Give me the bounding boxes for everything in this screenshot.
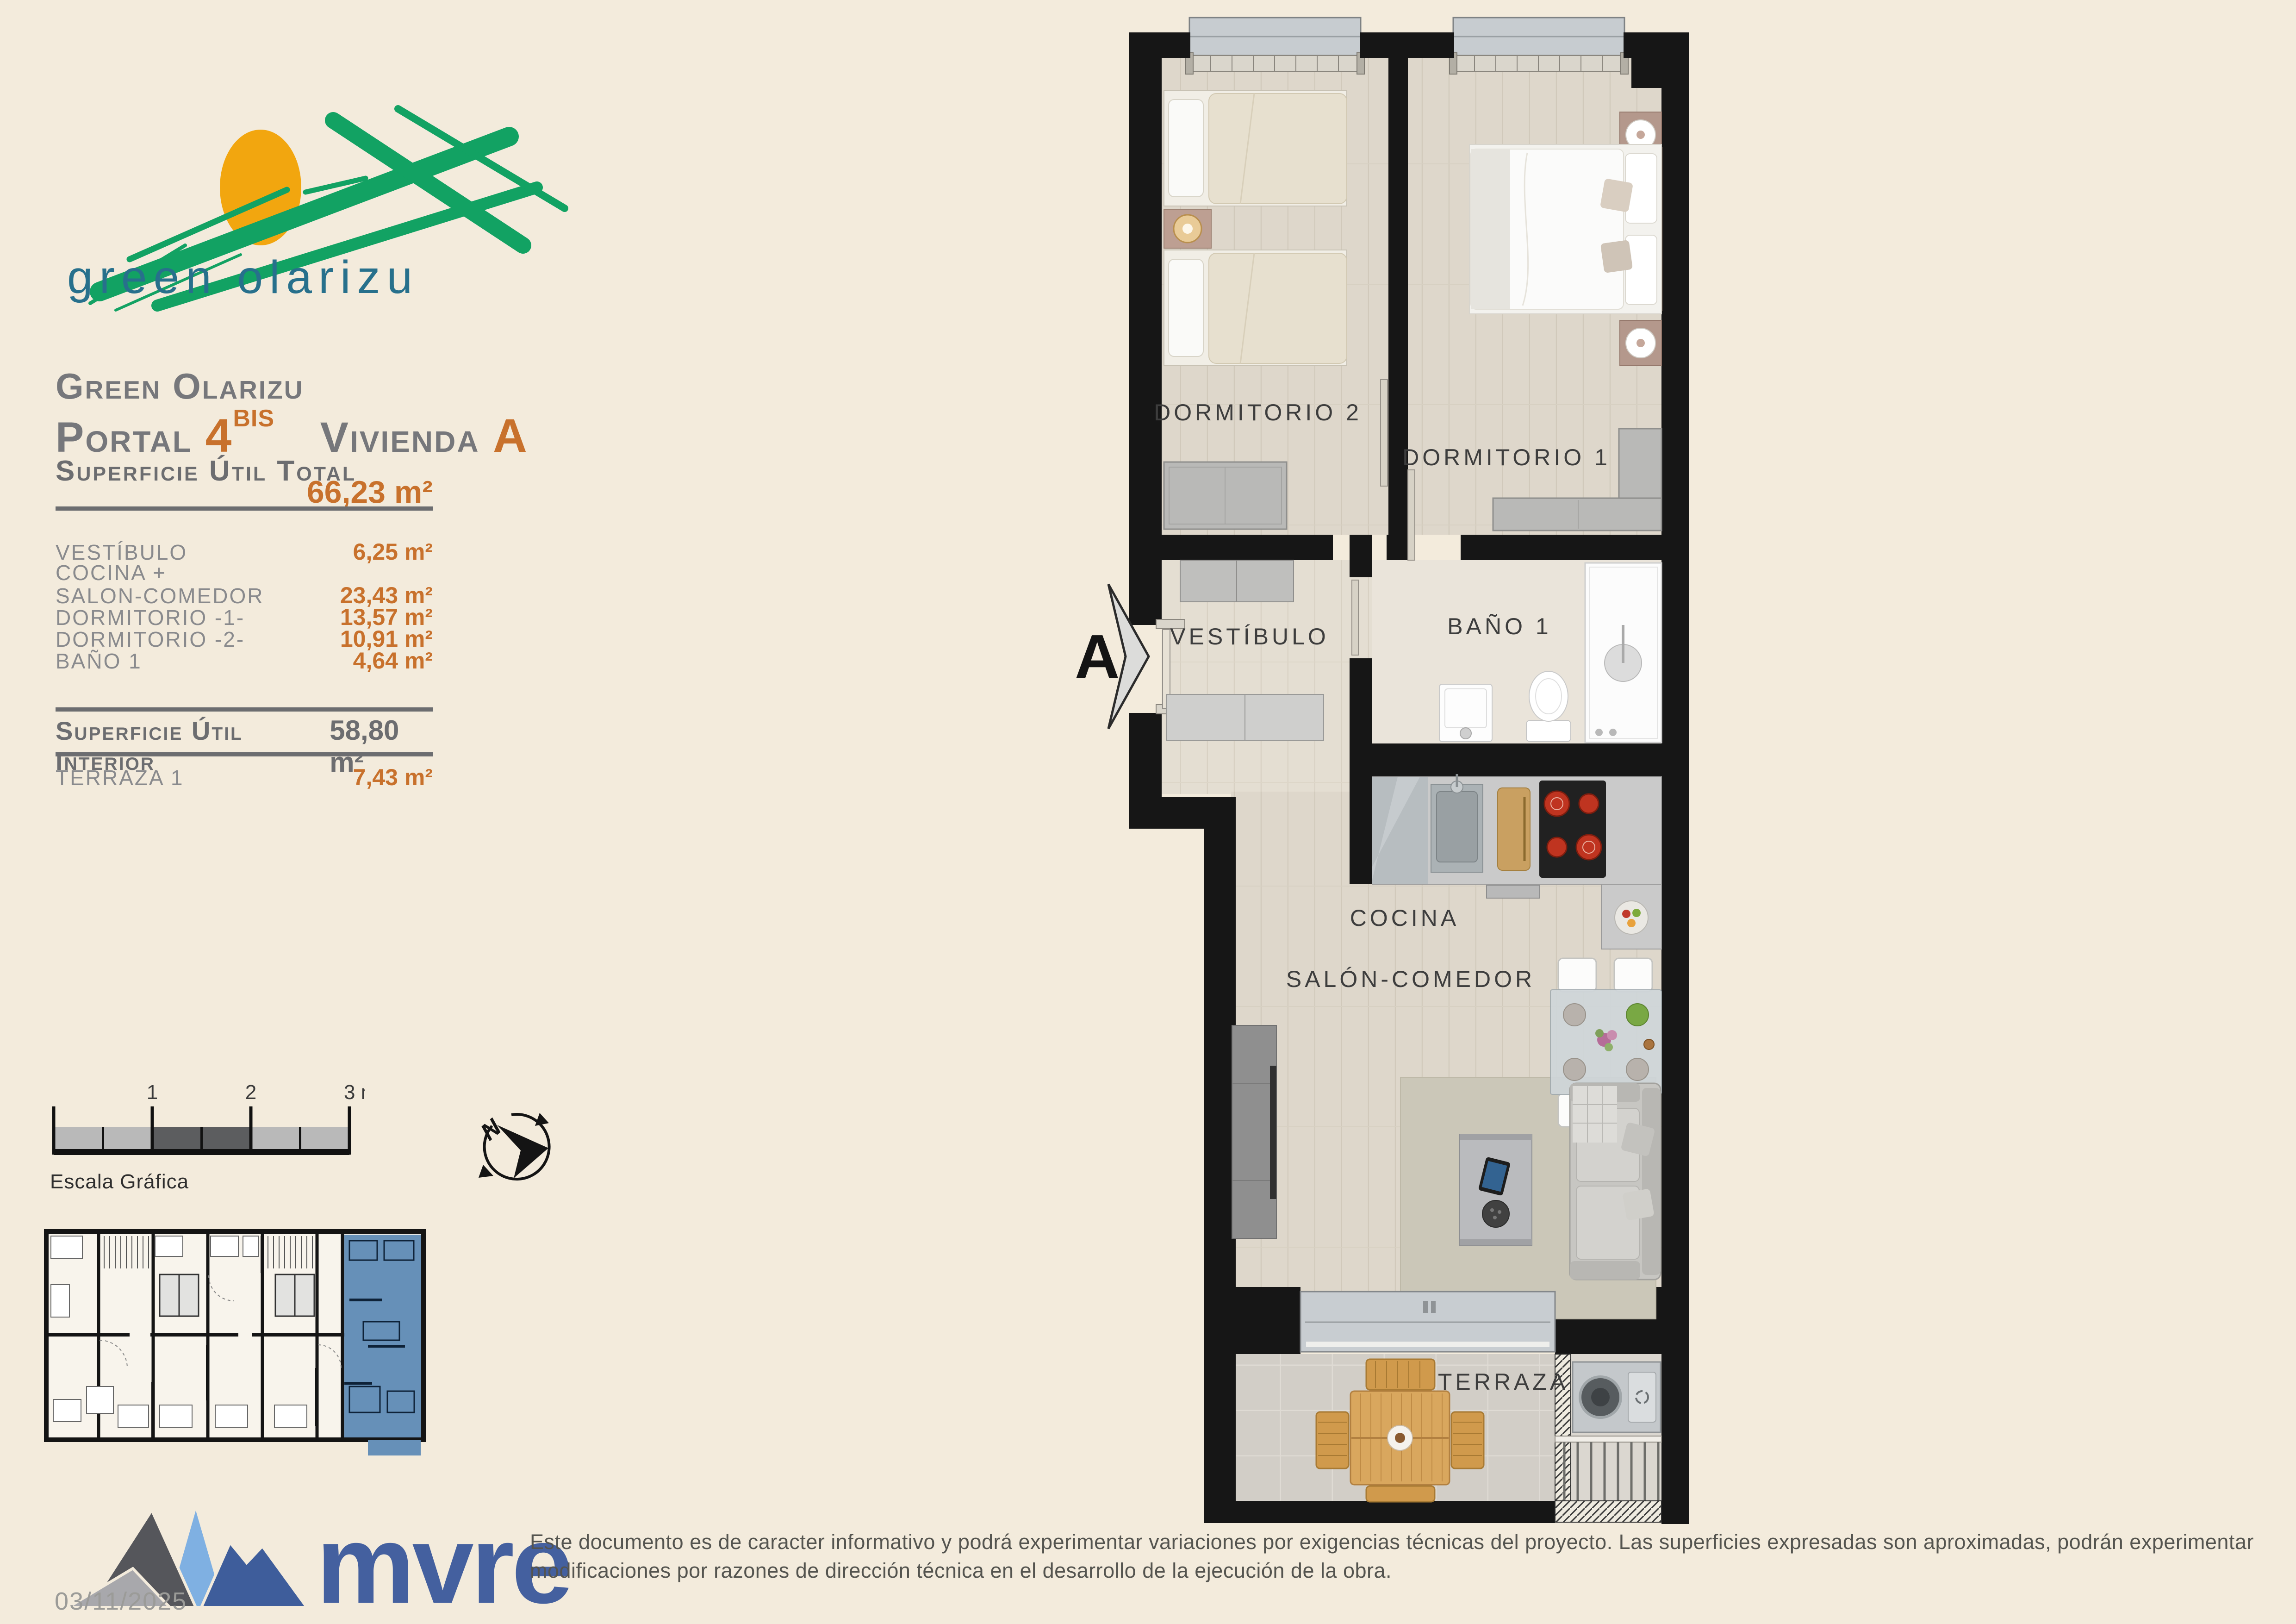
shower-icon [1585, 563, 1661, 743]
portal-sup: BIS [233, 405, 274, 432]
logo-wordmark: green olarizu [67, 251, 419, 303]
unit-title: Portal 4BIS Vivienda A [56, 406, 529, 459]
project-name: Green Olarizu [56, 368, 304, 404]
svg-text:1: 1 [147, 1081, 158, 1104]
svg-text:A: A [1075, 622, 1120, 692]
vivienda-label: Vivienda [320, 414, 480, 461]
terraza-row: TERRAZA 17,43 m² [56, 764, 433, 786]
apartment-floorplan: A DORMITORIO 2 DORMITORIO 1 VESTÍBULO BA… [1074, 5, 1745, 1542]
window-icon [1450, 18, 1628, 74]
north-compass-icon: N [473, 1103, 561, 1191]
mountain-blue-icon [201, 1543, 307, 1607]
graphic-scale-bar: 1 2 3 m. [50, 1073, 365, 1166]
total-area-value: 66,23 m² [56, 474, 433, 510]
area-row: DORMITORIO -1-13,57 m² [56, 604, 433, 625]
portal-number: 4 [205, 409, 233, 462]
divider [56, 752, 433, 756]
svg-text:3 m.: 3 m. [344, 1081, 365, 1104]
room-label-dormitorio2: DORMITORIO 2 [1154, 400, 1362, 425]
coffee-table [1460, 1134, 1532, 1245]
room-label-bano: BAÑO 1 [1447, 613, 1551, 639]
toilet-icon [1526, 671, 1571, 742]
building-overview-plan [44, 1229, 426, 1458]
area-row: DORMITORIO -2-10,91 m² [56, 625, 433, 647]
sink-icon [1439, 684, 1492, 742]
area-rows: VESTÍBULO6,25 m² COCINA + SALON-COMEDOR2… [56, 538, 433, 669]
room-label-dormitorio1: DORMITORIO 1 [1402, 444, 1611, 470]
green-olarizu-logo: green olarizu [46, 93, 579, 324]
plan-sheet: green olarizu Green Olarizu Portal 4BIS … [0, 0, 2296, 1624]
room-label-cocina: COCINA [1350, 905, 1459, 931]
area-row: SALON-COMEDOR23,43 m² [56, 582, 433, 604]
divider [56, 506, 433, 511]
highlighted-unit [344, 1235, 421, 1455]
portal-label: Portal [56, 414, 192, 461]
date: 03/11/2025 [55, 1587, 187, 1616]
area-row: VESTÍBULO6,25 m² [56, 538, 433, 560]
scale-caption: Escala Gráfica [50, 1170, 189, 1193]
room-label-salon: SALÓN-COMEDOR [1286, 966, 1535, 992]
room-label-terraza: TERRAZA [1438, 1369, 1568, 1395]
disclaimer-text: Este documento es de caracter informativ… [530, 1528, 2279, 1585]
vivienda-letter: A [493, 409, 529, 462]
terrace-door [1300, 1292, 1555, 1352]
divider [56, 707, 433, 712]
svg-text:N: N [476, 1113, 507, 1145]
svg-text:2: 2 [245, 1081, 256, 1104]
dormitorio2-wardrobe [1164, 462, 1287, 529]
window-icon [1186, 18, 1364, 74]
sofa [1570, 1083, 1661, 1280]
tv-unit [1232, 1025, 1276, 1238]
room-label-vestibulo: VESTÍBULO [1170, 624, 1329, 650]
